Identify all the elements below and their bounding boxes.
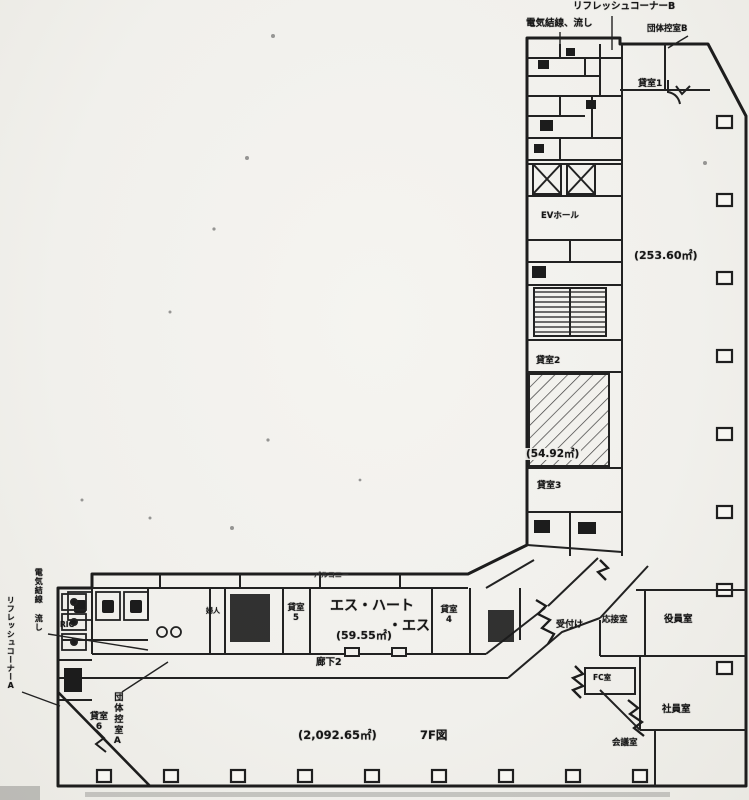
label-drawing-room: 応接室 [602,616,628,626]
rental4-num: 4 [446,615,452,625]
label-group-room-a: 団体控室A [112,692,122,748]
door-squiggles [536,560,644,736]
floor-plan-page: リフレッシュコーナーB 電気結線、流し 団体控室B 貸室1 (253.60㎡) … [0,0,749,800]
label-group-room-b: 団体控室B [647,25,687,35]
label-ric: RIC [60,621,74,630]
label-fc-room: FC室 [593,674,611,683]
label-total-area: (2,092.65㎡) [298,729,377,742]
label-refresh-corner-a: リフレッシュコーナーA [6,596,15,691]
rental5-name: 貸室 [287,603,304,613]
label-womens: 婦人 [206,607,220,615]
label-ev-hall: EVホール [541,212,579,222]
label-rental2: 貸室2 [536,356,560,366]
label-refresh-corner-b: リフレッシュコーナーB [573,2,675,13]
floor-plan-drawing [0,0,749,800]
label-staff-room: 社員室 [662,705,691,716]
rental4-name: 貸室 [440,605,457,615]
scan-specks [81,34,708,530]
rental6-num: 6 [96,722,102,732]
label-tenant-area: (59.55㎡) [336,630,392,643]
stairwell-icon [534,288,606,336]
label-tenant-name-1: エス・ハート [330,598,414,614]
label-rental4: 貸室4 [437,606,461,626]
label-tenant-name-2: ・エス [388,618,430,634]
rental6-name: 貸室 [90,712,108,722]
label-meeting-room: 会議室 [612,739,638,749]
scan-shadow-corner [0,786,40,800]
label-reception: 受付け [556,620,583,630]
label-corridor2: 廊下2 [316,658,342,669]
label-electric-note-top: 電気結線、流し [526,19,593,30]
label-electric-note-left: 電気結線 流し [34,568,43,632]
bottom-windows [97,770,647,782]
balcony-lines [92,574,468,588]
label-rental1: 貸室1 [638,79,662,89]
label-floor: 7F図 [420,729,447,742]
elevator-shaft-icons [533,164,595,194]
label-rental5: 貸室5 [284,604,308,624]
label-rental1-area: (253.60㎡) [634,250,698,263]
label-rental3: 貸室3 [537,481,561,491]
label-executive-room: 役員室 [664,615,693,626]
rental5-num: 5 [293,613,299,623]
scan-shadow-bottom [85,792,670,797]
label-hatched-area: (54.92㎡) [524,448,581,460]
refresh-block-a [58,594,92,700]
outer-walls [58,38,746,786]
label-balcony: バルコニー [314,571,349,579]
label-rental6: 貸室6 [86,712,112,733]
group-room-b-walls [620,44,710,104]
